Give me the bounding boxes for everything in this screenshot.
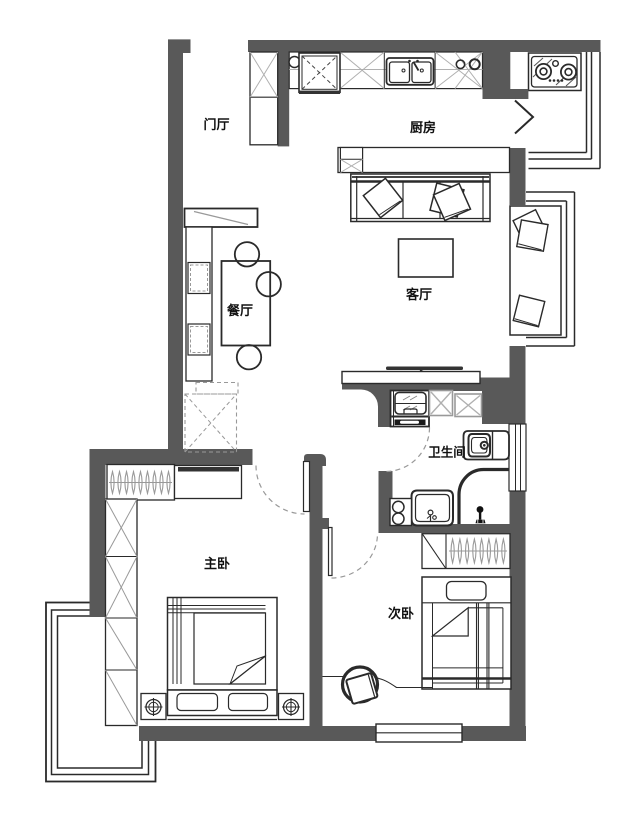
svg-text:卫生间: 卫生间 [428, 445, 466, 460]
svg-text:客厅: 客厅 [406, 287, 432, 302]
svg-text:主卧: 主卧 [204, 556, 230, 571]
svg-text:次卧: 次卧 [388, 606, 414, 621]
svg-text:厨房: 厨房 [410, 120, 436, 135]
svg-text:门厅: 门厅 [203, 117, 229, 132]
svg-text:餐厅: 餐厅 [226, 303, 253, 318]
